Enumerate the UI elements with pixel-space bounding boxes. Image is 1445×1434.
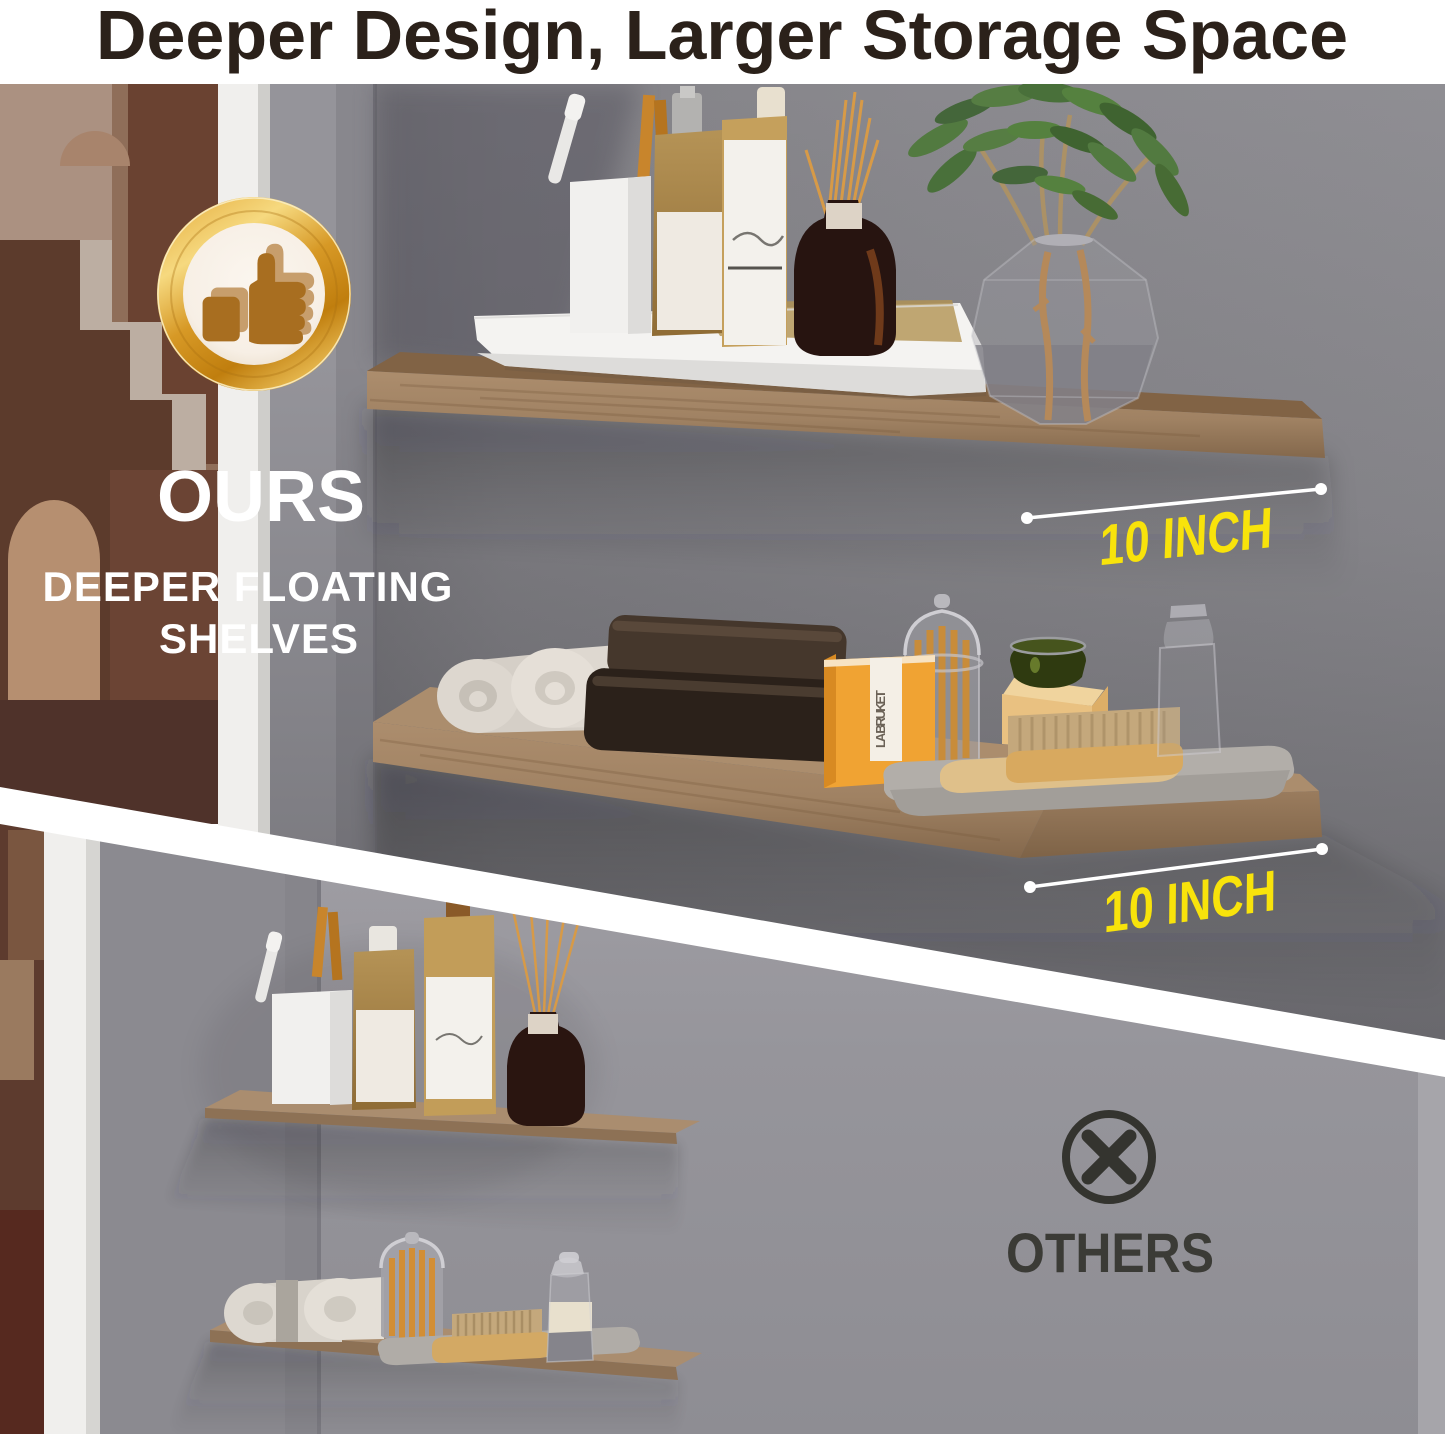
svg-text:OURS: OURS — [157, 457, 365, 537]
svg-text:LA BRUKET: LA BRUKET — [873, 690, 888, 748]
svg-text:Deeper Design, Larger Storage: Deeper Design, Larger Storage Space — [96, 0, 1348, 74]
svg-text:OTHERS: OTHERS — [1006, 1221, 1214, 1284]
svg-text:DEEPER FLOATING: DEEPER FLOATING — [43, 563, 454, 610]
svg-text:SHELVES: SHELVES — [159, 615, 359, 662]
